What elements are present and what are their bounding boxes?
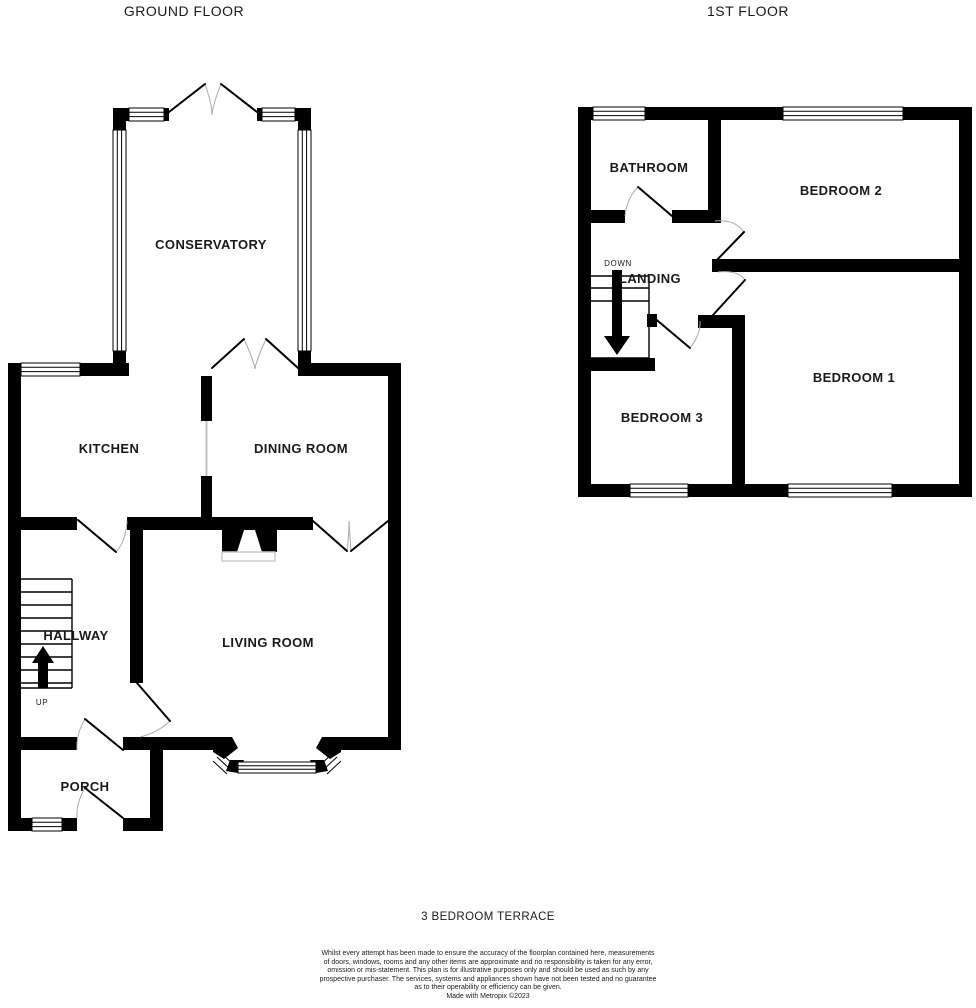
room-label-living-room: LIVING ROOM [222, 635, 314, 650]
conservatory-window-top-right [262, 108, 295, 121]
disclaimer-text: Whilst every attempt has been made to en… [0, 950, 976, 1002]
bedroom-2-window [783, 107, 903, 120]
bathroom-door [625, 187, 672, 216]
conservatory-dining-double-door [212, 339, 298, 369]
room-label-bedroom-3: BEDROOM 3 [621, 410, 703, 425]
room-label-hallway: HALLWAY [43, 628, 108, 643]
ground-floor-plan: GROUND FLOOR CONSERVATORY KITCHEN DINING… [8, 3, 401, 831]
first-floor-plan: 1ST FLOOR BATHROOM BEDROOM 2 LANDING BED… [578, 3, 972, 497]
room-label-dining-room: DINING ROOM [254, 441, 348, 456]
bay-window [213, 737, 341, 774]
bedroom-2-door [715, 221, 744, 261]
hallway-living-door [137, 683, 170, 737]
conservatory-window-right [298, 130, 311, 351]
disclaimer-line: of doors, windows, rooms and any other i… [0, 959, 976, 968]
room-label-landing: LANDING [619, 271, 681, 286]
room-label-porch: PORCH [61, 779, 110, 794]
dining-living-double-door [313, 521, 388, 551]
up-arrow-icon [32, 646, 54, 688]
bedroom-3-door [652, 316, 700, 348]
porch-window [32, 818, 62, 831]
room-label-kitchen: KITCHEN [79, 441, 140, 456]
property-type-caption: 3 BEDROOM TERRACE [0, 911, 976, 923]
fireplace [222, 530, 277, 561]
room-label-bathroom: BATHROOM [610, 160, 689, 175]
kitchen-hallway-door [78, 520, 127, 552]
floorplan-page: GROUND FLOOR CONSERVATORY KITCHEN DINING… [0, 0, 976, 1008]
first-floor-title: 1ST FLOOR [707, 3, 789, 19]
kitchen-window [21, 363, 80, 376]
stairs-down-label: DOWN [604, 259, 632, 268]
bedroom-3-window [630, 484, 688, 497]
disclaimer-line: omission or mis-statement. This plan is … [0, 967, 976, 976]
conservatory-window-left [113, 130, 126, 351]
disclaimer-line: prospective purchaser. The services, sys… [0, 976, 976, 985]
bathroom-window [593, 107, 645, 120]
disclaimer-line: Whilst every attempt has been made to en… [0, 950, 976, 959]
floorplan-drawing: GROUND FLOOR CONSERVATORY KITCHEN DINING… [0, 0, 976, 1008]
hallway-porch-door [77, 719, 123, 750]
disclaimer-line: as to their operability or efficiency ca… [0, 984, 976, 993]
room-label-conservatory: CONSERVATORY [155, 237, 267, 252]
conservatory-window-top-left [129, 108, 164, 121]
ground-floor-walls [8, 363, 401, 831]
bedroom-1-window [788, 484, 892, 497]
conservatory-exterior-double-door [169, 84, 257, 115]
bedroom-1-door [713, 272, 745, 315]
credit-line: Made with Metropix ©2023 [0, 993, 976, 1002]
ground-floor-title: GROUND FLOOR [124, 3, 244, 19]
room-label-bedroom-1: BEDROOM 1 [813, 370, 895, 385]
stairs-up-label: UP [36, 698, 48, 707]
room-label-bedroom-2: BEDROOM 2 [800, 183, 882, 198]
